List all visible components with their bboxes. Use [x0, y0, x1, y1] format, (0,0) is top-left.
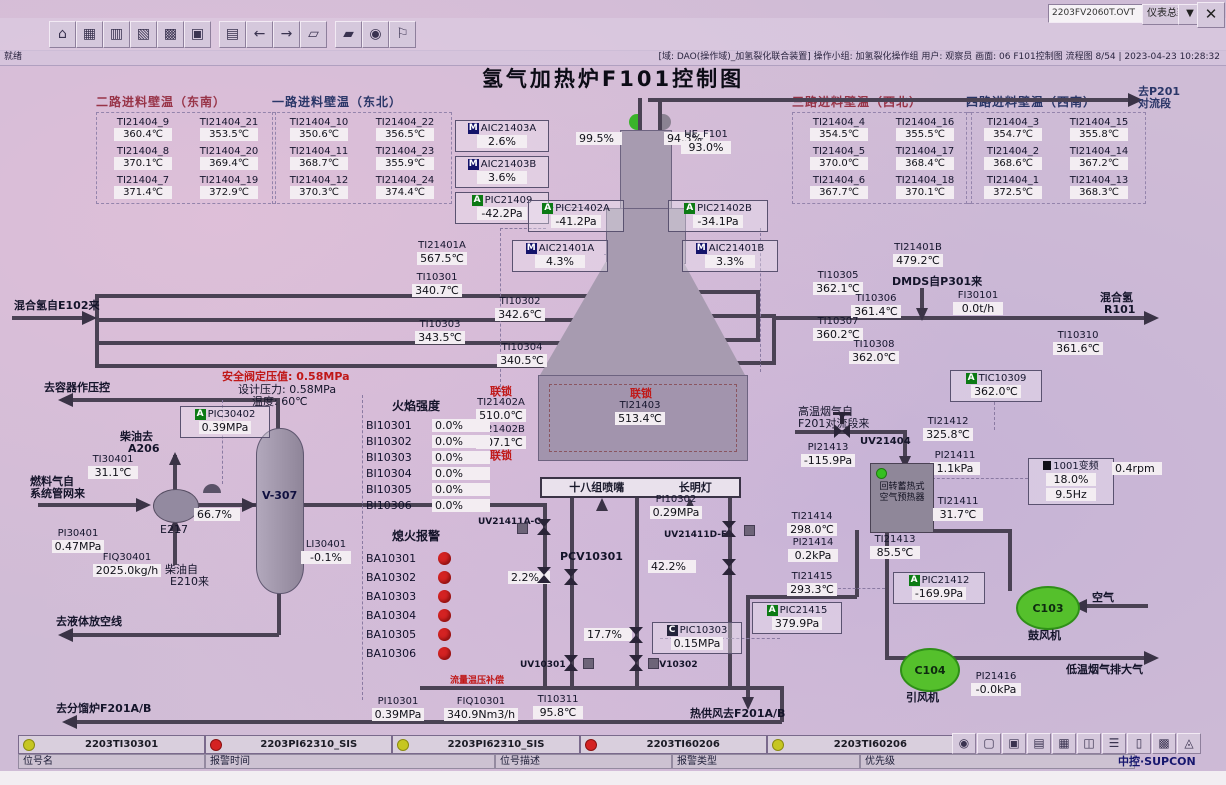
alarm-column-header: 报警时间	[205, 754, 495, 769]
valve-position-chip[interactable]: 66.7%	[194, 508, 240, 521]
alarm-column-header: 位号名	[18, 754, 205, 769]
instrument-li30401[interactable]: LI30401-0.1%	[294, 539, 358, 565]
mode-badge: A	[195, 409, 206, 420]
wall-temp-cell[interactable]: TI21404_10350.6℃	[276, 117, 362, 141]
exchanger-label: E217	[160, 524, 188, 536]
next-page-icon[interactable]: ▰	[335, 21, 362, 48]
flameout-row[interactable]: BA10301	[366, 549, 451, 568]
wall-temp-cell[interactable]: TI21404_3354.7℃	[970, 117, 1056, 141]
trend-icon[interactable]: ▧	[130, 21, 157, 48]
mode-badge: M	[468, 123, 479, 134]
mode-badge: A	[684, 203, 695, 214]
flame-intensity-row[interactable]: BI103030.0%	[366, 449, 490, 465]
mode-badge: A	[966, 373, 977, 384]
flame-intensity-row[interactable]: BI103050.0%	[366, 481, 490, 497]
diesel-from-label-2: E210来	[170, 576, 209, 588]
pipe	[746, 595, 750, 701]
pipe	[277, 590, 281, 635]
status-dot-green	[876, 468, 887, 479]
pipe	[795, 430, 905, 434]
list-icon[interactable]: ☰	[1102, 733, 1126, 754]
pipe	[648, 98, 1134, 102]
valve-stem	[833, 412, 851, 415]
wall-temp-cell[interactable]: TI21404_7371.4℃	[100, 175, 186, 199]
fan-c104[interactable]: C104	[900, 648, 960, 692]
pipe	[638, 98, 642, 134]
alarm-column-headers: 位号名报警时间位号描述报警类型优先级	[18, 754, 1135, 769]
mode-badge: A	[472, 195, 483, 206]
instrument-he-f101[interactable]: HE_F10193.0%	[666, 129, 746, 155]
uv-valve[interactable]	[629, 655, 643, 671]
pipe	[772, 314, 776, 365]
wall-temp-cell[interactable]: TI21404_22356.5℃	[362, 117, 448, 141]
user-icon[interactable]: ⚐	[389, 21, 416, 48]
instrument-pic21415[interactable]: APIC21415 379.9Pa	[752, 602, 842, 634]
pipe	[932, 529, 1012, 533]
valve-label-uv10301: UV10301	[520, 660, 566, 670]
flame-intensity-header: 火焰强度	[392, 400, 440, 412]
report-icon[interactable]: ▤	[219, 21, 246, 48]
blower-name: 鼓风机	[1028, 630, 1061, 642]
wall-temp-table-pass2: 二路进料壁温（东南） TI21404_9360.4℃TI21404_21353.…	[96, 93, 276, 204]
uv-valve[interactable]	[722, 521, 736, 537]
wall-temp-cell[interactable]: TI21404_1372.5℃	[970, 175, 1056, 199]
valve-position-chip[interactable]: 42.2%	[648, 560, 696, 573]
alarm-dot-red	[438, 609, 451, 622]
to-frac-label: 去分馏炉F201A/B	[56, 703, 151, 715]
indicator-square	[1043, 461, 1051, 470]
status-right: [域: DAO(操作域)_加氢裂化联合装置] 操作小组: 加氢裂化操作组 用户:…	[659, 50, 1221, 64]
overview-icon[interactable]: ▦	[76, 21, 103, 48]
vfd-1001[interactable]: 1001变频 18.0% 9.5Hz	[1028, 458, 1114, 505]
flame-intensity-row[interactable]: BI103020.0%	[366, 433, 490, 449]
alarm-dot-red	[438, 571, 451, 584]
wall-temp-table-pass1: 一路进料壁温（东北） TI21404_10350.6℃TI21404_22356…	[272, 93, 452, 204]
control-valve[interactable]	[629, 627, 643, 643]
screen-icon[interactable]: ▣	[1002, 733, 1026, 754]
signal-line	[994, 402, 995, 430]
instrument-pi21413[interactable]: PI21413-115.9Pa	[790, 442, 866, 468]
valve-label-pcv10301: PCV10301	[560, 551, 623, 563]
instrument-pi10302[interactable]: PI103020.29MPa	[636, 494, 716, 520]
instrument-pic21402b[interactable]: APIC21402B -34.1Pa	[668, 200, 768, 232]
alarm-dot-red	[438, 590, 451, 603]
instrument-tic10309[interactable]: ATIC10309 362.0℃	[950, 370, 1042, 402]
valve-actuator	[583, 658, 594, 669]
alarm-status-dot	[210, 739, 222, 751]
alarm-dot-red	[438, 552, 451, 565]
mixed-h2-in-label: 混合氢自E102来	[14, 300, 99, 312]
flameout-row[interactable]: BA10305	[366, 625, 451, 644]
instrument-aic21403a[interactable]: MAIC21403A 2.6%	[455, 120, 549, 152]
screen-file-input[interactable]: 2203FV2060T.OVT	[1048, 4, 1144, 23]
arrow-frac-left	[62, 715, 77, 729]
flameout-row[interactable]: BA10303	[366, 587, 451, 606]
blower-c103[interactable]: C103	[1016, 586, 1080, 630]
back-icon[interactable]: ←	[246, 21, 273, 48]
wall-temp-cell[interactable]: TI21404_5370.0℃	[796, 146, 882, 170]
flameout-row[interactable]: BA10304	[366, 606, 451, 625]
wall-temp-cell[interactable]: TI21404_24374.4℃	[362, 175, 448, 199]
document-icon[interactable]: ▯	[1127, 733, 1151, 754]
wall-temp-cell[interactable]: TI21404_11368.7℃	[276, 146, 362, 170]
control-valve[interactable]	[722, 559, 736, 575]
pilot-label: 长明灯	[679, 481, 712, 495]
instrument-ti10301[interactable]: TI10301340.7℃	[395, 272, 479, 298]
mode-badge: A	[542, 203, 553, 214]
instrument-ti21401b[interactable]: TI21401B479.2℃	[876, 242, 960, 268]
instrument-ti21411[interactable]: TI2141131.7℃	[926, 496, 990, 522]
alarm-dot-red	[438, 647, 451, 660]
wall-temp-cell[interactable]: TI21404_14367.2℃	[1056, 146, 1142, 170]
valve-label-uv21404: UV21404	[860, 436, 911, 448]
arrow-fuel2	[242, 498, 257, 512]
wall-temp-table-pass3: 三路进料壁温（西北） TI21404_4354.5℃TI21404_16355.…	[792, 93, 972, 204]
instrument-ti10302[interactable]: TI10302342.6℃	[478, 296, 562, 322]
control-valve[interactable]	[564, 569, 578, 585]
uv-valve[interactable]	[564, 655, 578, 671]
pipe	[38, 503, 146, 507]
mode-badge: C	[667, 625, 678, 636]
to-liquid-vent-label: 去液体放空线	[56, 616, 122, 628]
diesel-to-label-2: A206	[128, 443, 159, 455]
arrow-vent-left	[58, 628, 73, 642]
instrument-ti10310[interactable]: TI10310361.6℃	[1036, 330, 1120, 356]
instrument-pi21414[interactable]: PI214140.2kPa	[778, 537, 848, 563]
bottom-icon-strip: ◉▢▣▤▦◫☰▯▩◬	[952, 733, 1201, 754]
pipe	[62, 633, 279, 637]
pipe	[692, 290, 758, 294]
wall-temp-cell[interactable]: TI21404_8370.1℃	[100, 146, 186, 170]
user-switch-icon[interactable]: ◉	[952, 733, 976, 754]
valve-position-chip[interactable]: 99.5%	[576, 132, 622, 145]
flow-compensation-label: 流量温压补偿	[450, 676, 504, 686]
burner-label: 十八组喷嘴	[569, 481, 624, 495]
pipe	[420, 686, 782, 690]
forward-icon[interactable]: →	[273, 21, 300, 48]
home-icon[interactable]: ⌂	[49, 21, 76, 48]
air-label: 空气	[1092, 592, 1114, 604]
instrument-pi30401[interactable]: PI304010.47MPa	[40, 528, 116, 554]
pipe	[12, 316, 86, 320]
interlock-label: 联锁	[490, 450, 512, 462]
alarm-status-dot	[397, 739, 409, 751]
instrument-pic10303[interactable]: CPIC10303 0.15MPa	[652, 622, 742, 654]
pipe	[855, 530, 859, 597]
control-valve-dome[interactable]	[203, 484, 221, 493]
find-icon[interactable]: ◉	[362, 21, 389, 48]
schedule-icon[interactable]: ▩	[157, 21, 184, 48]
instrument-pic21402a[interactable]: APIC21402A -41.2Pa	[528, 200, 624, 232]
alarm-banner-item[interactable]: 2203TI60206	[767, 735, 954, 754]
wall-temp-cell[interactable]: TI21404_19372.9℃	[186, 175, 272, 199]
instrument-ti21412[interactable]: TI21412325.8℃	[912, 416, 984, 442]
instrument-ti10304[interactable]: TI10304340.5℃	[480, 342, 564, 368]
instrument-aic21403b[interactable]: MAIC21403B 3.6%	[455, 156, 549, 188]
instrument-pi10301[interactable]: PI103010.39MPa	[362, 696, 434, 722]
instrument-ti10311[interactable]: TI1031195.8℃	[526, 694, 590, 720]
supcon-logo: 中控·SUPCON	[1118, 753, 1196, 769]
exchanger-e217[interactable]	[153, 489, 199, 523]
status-left: 就绪	[4, 50, 22, 64]
to-vessel-pc-label: 去容器作压控	[44, 382, 110, 394]
instrument-ti21403[interactable]: TI21403513.4℃	[600, 400, 680, 426]
mixed-h2-out-label-2: R101	[1104, 304, 1135, 316]
page-title: 氢气加热炉F101控制图	[0, 63, 1226, 93]
instrument-ti21414[interactable]: TI21414298.0℃	[776, 511, 848, 537]
alarm-status-dot	[23, 739, 35, 751]
wall-temp-cell[interactable]: TI21404_15355.8℃	[1056, 117, 1142, 141]
wall-temp-cell[interactable]: TI21404_13368.3℃	[1056, 175, 1142, 199]
instrument-ti21413[interactable]: TI2141385.5℃	[862, 534, 928, 560]
wall-temp-cell[interactable]: TI21404_23355.9℃	[362, 146, 448, 170]
alarm-column-header: 报警类型	[672, 754, 860, 769]
arrow-cold-flue	[1144, 651, 1159, 665]
lock-icon[interactable]: ▢	[977, 733, 1001, 754]
screen-bottom-edge	[0, 771, 1226, 785]
valve-actuator	[648, 658, 659, 669]
wall-temp-cell[interactable]: TI21404_12370.3℃	[276, 175, 362, 199]
alarm-column-header: 优先级	[860, 754, 1135, 769]
arrow-inlet	[82, 311, 97, 325]
alarm-dot-red	[438, 628, 451, 641]
wall-temp-cell[interactable]: TI21404_6367.7℃	[796, 175, 882, 199]
horn-icon[interactable]: ◬	[1177, 733, 1201, 754]
mode-badge: M	[468, 159, 479, 170]
arrow-relief-left	[58, 393, 73, 407]
uv-valve[interactable]	[537, 519, 551, 535]
arrow-to-r101	[1144, 311, 1159, 325]
valve-label-uv21411df: UV21411D-F	[664, 530, 727, 540]
instrument-fiq30401[interactable]: FIQ304012025.0kg/h	[82, 552, 172, 578]
close-button[interactable]: ✕	[1197, 2, 1225, 28]
instrument-ti30401[interactable]: TI3040131.1℃	[78, 454, 148, 480]
alarm-doc-icon[interactable]: ◫	[1077, 733, 1101, 754]
grid-icon[interactable]: ▩	[1152, 733, 1176, 754]
alarm-banner-item[interactable]: 2203PI62310_SIS	[205, 735, 392, 754]
instrument-ti10308[interactable]: TI10308362.0℃	[832, 339, 916, 365]
instrument-pic21412[interactable]: APIC21412 -169.9Pa	[893, 572, 985, 604]
wall-temp-cell[interactable]: TI21404_20369.4℃	[186, 146, 272, 170]
dmds-label: DMDS自P301来	[892, 276, 982, 288]
valve-stem	[840, 414, 844, 424]
vfd-rpm-chip: 0.4rpm	[1112, 462, 1162, 475]
wall-temp-cell[interactable]: TI21404_2368.6℃	[970, 146, 1056, 170]
instrument-aic21401a[interactable]: MAIC21401A 4.3%	[512, 240, 608, 272]
alarm-column-header: 位号描述	[495, 754, 672, 769]
instrument-pi21416[interactable]: PI21416-0.0kPa	[960, 671, 1032, 697]
fuel-from-label-2: 系统管网来	[30, 488, 85, 500]
pipe	[1008, 529, 1012, 591]
mode-badge: A	[767, 605, 778, 616]
instrument-ti10303[interactable]: TI10303343.5℃	[398, 319, 482, 345]
interlock-label: 联锁	[630, 388, 652, 400]
wall-temp-cell[interactable]: TI21404_16355.5℃	[882, 117, 968, 141]
flame-intensity-row[interactable]: BI103010.0%	[366, 417, 490, 433]
instrument-ti21415[interactable]: TI21415293.3℃	[776, 571, 848, 597]
vessel-label: V-307	[262, 490, 297, 502]
spreadsheet-icon[interactable]: ▦	[1052, 733, 1076, 754]
mode-badge: A	[909, 575, 920, 586]
alarm-banner: 2203TI303012203PI62310_SIS2203PI62310_SI…	[18, 735, 954, 754]
flame-intensity-row[interactable]: BI103060.0%	[366, 497, 490, 513]
instrument-fiq10301[interactable]: FIQ10301340.9Nm3/h	[436, 696, 526, 722]
uv-valve[interactable]	[834, 424, 850, 438]
signal-line	[362, 395, 363, 700]
alarm-banner-item[interactable]: 2203PI62310_SIS	[392, 735, 579, 754]
prev-page-icon[interactable]: ▱	[300, 21, 327, 48]
sv-set-label: 安全阀定压值: 0.58MPa	[222, 371, 350, 383]
pipe	[953, 656, 1149, 660]
alarm-banner-item[interactable]: 2203TI60206	[580, 735, 767, 754]
mode-badge: M	[526, 243, 537, 254]
cold-flue-label: 低温烟气排大气	[1066, 664, 1143, 676]
hot-air-label: 热供风去F201A/B	[690, 708, 785, 720]
wall-temp-cell[interactable]: TI21404_18370.1℃	[882, 175, 968, 199]
wall-temp-cell[interactable]: TI21404_9360.4℃	[100, 117, 186, 141]
alarm-banner-item[interactable]: 2203TI30301	[18, 735, 205, 754]
mode-badge: M	[696, 243, 707, 254]
instrument-pic30402[interactable]: APIC30402 0.39MPa	[180, 406, 270, 438]
alarm-status-dot	[585, 739, 597, 751]
flameout-row[interactable]: BA10302	[366, 568, 451, 587]
valve-actuator	[744, 525, 755, 536]
group-display-icon[interactable]: ▥	[103, 21, 130, 48]
instrument-aic21401b[interactable]: MAIC21401B 3.3%	[682, 240, 778, 272]
flameout-list: BA10301BA10302BA10303BA10304BA10305BA103…	[366, 549, 451, 663]
control-valve[interactable]	[537, 567, 551, 583]
design-temp-label: 温度: 60℃	[252, 396, 308, 408]
arrow-fuel	[136, 498, 151, 512]
batch-icon[interactable]: ▣	[184, 21, 211, 48]
instrument-fi30101[interactable]: FI301010.0t/h	[936, 290, 1020, 316]
arrow-diesel-up	[169, 452, 181, 465]
valve-actuator	[517, 523, 528, 534]
valve-label-uv21411ac: UV21411A-C	[478, 517, 541, 527]
signal-line	[932, 478, 1028, 479]
vessel-v307[interactable]	[256, 428, 304, 594]
wall-temp-cell[interactable]: TI21404_17368.4℃	[882, 146, 968, 170]
flameout-row[interactable]: BA10306	[366, 644, 451, 663]
butterfly-valve[interactable]	[662, 114, 671, 130]
flame-intensity-row[interactable]: BI103040.0%	[366, 465, 490, 481]
valve-position-chip[interactable]: 17.7%	[584, 628, 632, 641]
pipe	[62, 398, 278, 402]
scada-screen: ⌂▦▥▧▩▣▤←→▱▰◉⚐ 2203FV2060T.OVT 仪表总貌 ▼ ✕ 就…	[0, 0, 1226, 785]
wall-temp-cell[interactable]: TI21404_4354.5℃	[796, 117, 882, 141]
wall-temp-cell[interactable]: TI21404_21353.5℃	[186, 117, 272, 141]
butterfly-valve-open[interactable]	[629, 114, 638, 130]
flame-intensity-list: BI103010.0%BI103020.0%BI103030.0%BI10304…	[366, 417, 490, 513]
wall-temp-table-pass4: 四路进料壁温（西南） TI21404_3354.7℃TI21404_15355.…	[966, 93, 1146, 204]
to-p201-label-2: 对流段	[1138, 98, 1171, 110]
flameout-header: 熄火报警	[392, 530, 440, 542]
instrument-ti21401a[interactable]: TI21401A567.5℃	[400, 240, 484, 266]
arrow-burner-up	[596, 498, 608, 511]
fan-name: 引风机	[906, 692, 939, 704]
alarm-status-dot	[772, 739, 784, 751]
alarm-pc-icon[interactable]: ▤	[1027, 733, 1051, 754]
